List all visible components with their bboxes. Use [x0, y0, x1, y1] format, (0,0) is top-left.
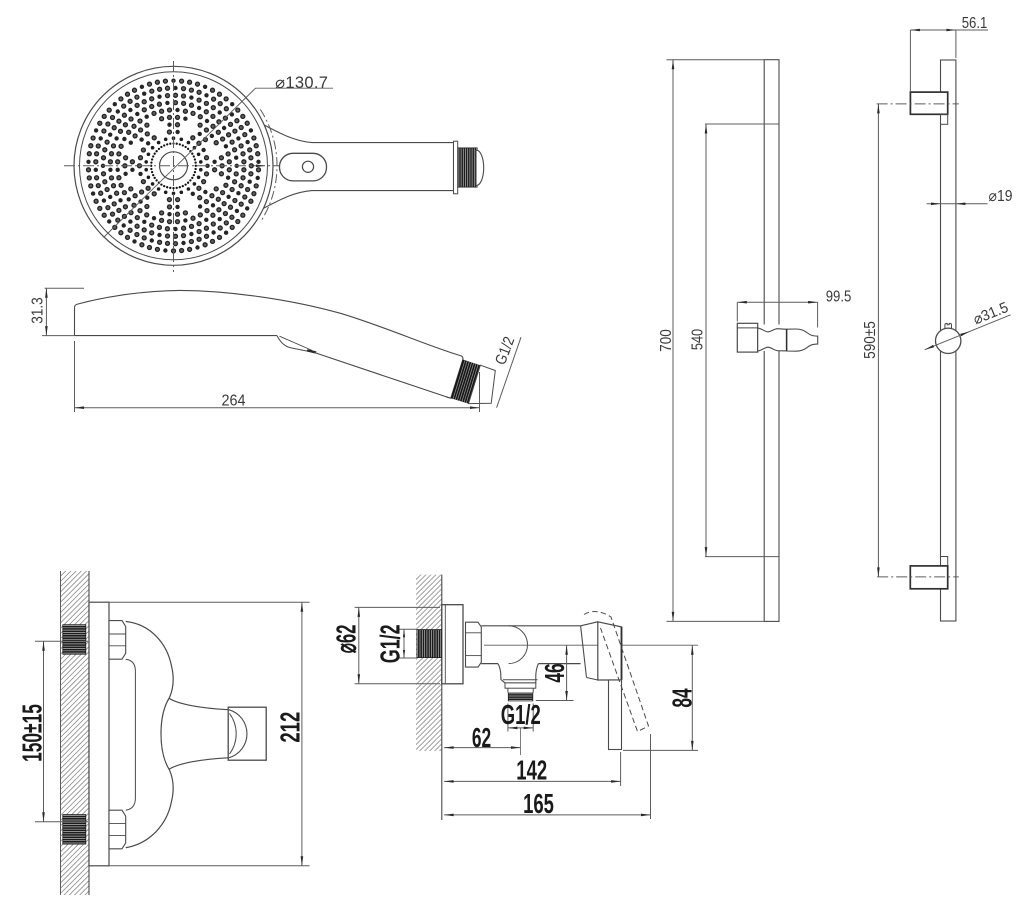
svg-text:⌀130.7: ⌀130.7	[275, 74, 328, 92]
svg-text:⌀62: ⌀62	[330, 625, 362, 654]
svg-text:540: 540	[689, 329, 707, 350]
svg-text:590±5: 590±5	[862, 321, 879, 359]
svg-text:G1/2: G1/2	[375, 624, 406, 663]
svg-text:46: 46	[539, 663, 570, 682]
svg-text:150±15: 150±15	[16, 704, 47, 762]
svg-text:700: 700	[658, 329, 675, 352]
svg-text:62: 62	[472, 722, 491, 753]
svg-text:212: 212	[276, 712, 307, 743]
svg-text:264: 264	[221, 392, 246, 410]
svg-text:84: 84	[666, 688, 697, 707]
svg-text:99.5: 99.5	[826, 288, 852, 305]
svg-text:G1/2: G1/2	[501, 700, 541, 731]
svg-text:142: 142	[516, 756, 547, 787]
svg-text:31.3: 31.3	[29, 297, 46, 323]
svg-text:⌀19: ⌀19	[989, 189, 1013, 206]
svg-text:165: 165	[523, 789, 554, 820]
svg-text:56.1: 56.1	[962, 15, 988, 32]
